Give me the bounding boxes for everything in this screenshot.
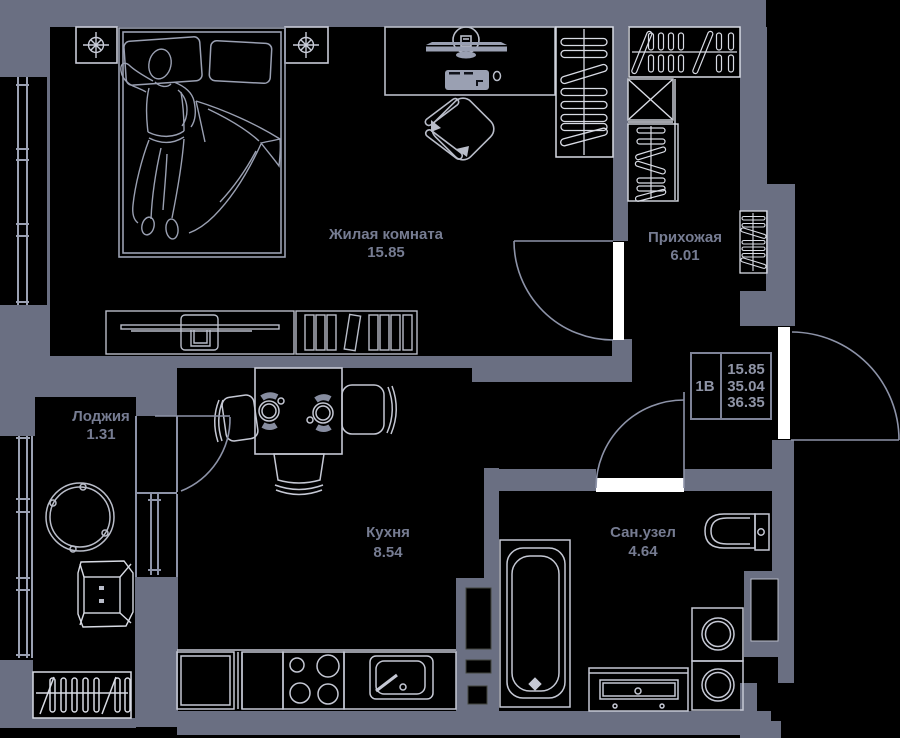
svg-text:Сан.узел: Сан.узел xyxy=(610,524,676,541)
svg-text:Жилая комната: Жилая комната xyxy=(328,226,444,243)
svg-text:4.64: 4.64 xyxy=(628,543,658,560)
svg-text:1В: 1В xyxy=(695,378,714,395)
svg-text:35.04: 35.04 xyxy=(727,378,765,395)
svg-text:6.01: 6.01 xyxy=(670,247,699,264)
svg-text:15.85: 15.85 xyxy=(367,244,405,261)
svg-text:Лоджия: Лоджия xyxy=(72,408,130,425)
svg-text:Кухня: Кухня xyxy=(366,524,410,541)
svg-text:36.35: 36.35 xyxy=(727,394,765,411)
svg-text:1.31: 1.31 xyxy=(86,426,115,443)
svg-text:8.54: 8.54 xyxy=(373,544,403,561)
svg-text:15.85: 15.85 xyxy=(727,361,765,378)
svg-text:Прихожая: Прихожая xyxy=(648,229,722,246)
